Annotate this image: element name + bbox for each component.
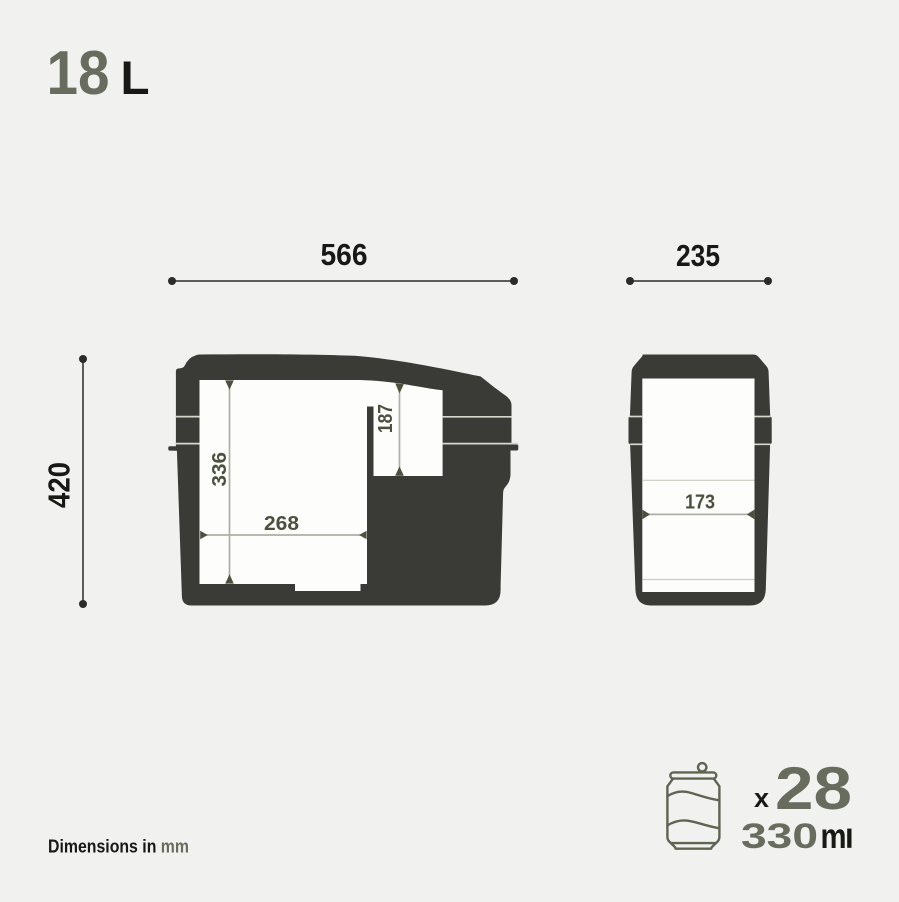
svg-text:187: 187 [375, 404, 397, 433]
svg-text:L: L [121, 52, 150, 105]
svg-text:18: 18 [47, 39, 110, 108]
svg-text:x: x [754, 783, 769, 813]
svg-text:566: 566 [321, 237, 368, 272]
svg-text:235: 235 [676, 238, 720, 273]
svg-text:m: m [821, 817, 847, 856]
svg-text:28: 28 [775, 755, 852, 822]
svg-text:173: 173 [685, 492, 715, 514]
svg-text:268: 268 [264, 513, 299, 535]
svg-text:420: 420 [42, 462, 77, 508]
svg-text:330: 330 [741, 817, 818, 856]
svg-text:Dimensions in mm: Dimensions in mm [48, 837, 189, 857]
svg-text:336: 336 [209, 452, 231, 487]
